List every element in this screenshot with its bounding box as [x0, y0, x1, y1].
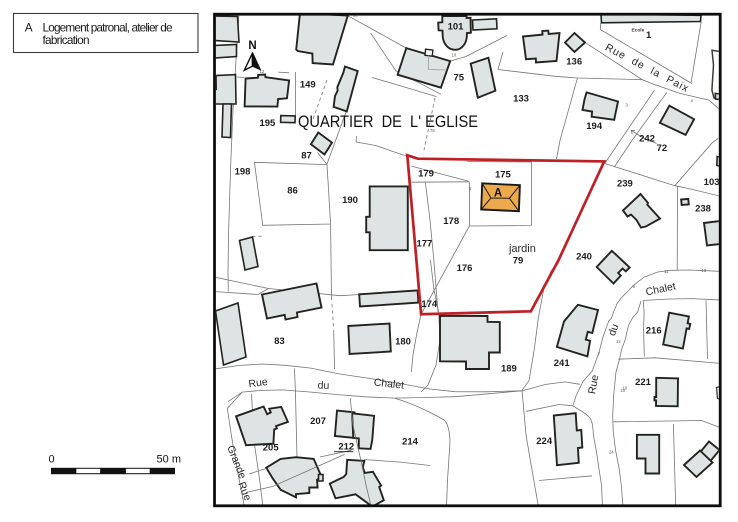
- svg-text:136: 136: [566, 57, 582, 68]
- svg-text:190: 190: [342, 195, 358, 206]
- svg-text:189: 189: [501, 364, 517, 375]
- svg-text:75: 75: [454, 73, 465, 84]
- svg-text:A: A: [25, 21, 33, 35]
- svg-text:79: 79: [513, 256, 524, 267]
- svg-text:11: 11: [664, 269, 669, 274]
- svg-text:12: 12: [616, 339, 621, 344]
- svg-text:1: 1: [646, 30, 652, 41]
- svg-text:jardin: jardin: [508, 243, 536, 255]
- svg-text:195: 195: [259, 118, 276, 129]
- svg-text:241: 241: [554, 358, 571, 369]
- svg-text:214: 214: [402, 437, 419, 448]
- svg-text:238: 238: [695, 204, 711, 215]
- svg-text:216: 216: [646, 326, 662, 337]
- svg-text:212: 212: [338, 442, 354, 453]
- svg-text:A: A: [494, 188, 502, 200]
- svg-text:0: 0: [49, 454, 55, 466]
- svg-text:10: 10: [452, 53, 457, 58]
- svg-text:133: 133: [513, 93, 529, 104]
- svg-text:50 m: 50 m: [157, 454, 181, 466]
- svg-text:83: 83: [274, 336, 285, 347]
- svg-text:Ecole: Ecole: [631, 28, 644, 34]
- svg-text:76: 76: [430, 128, 435, 133]
- svg-text:177: 177: [416, 238, 432, 249]
- svg-text:174: 174: [421, 299, 438, 310]
- svg-text:du: du: [317, 380, 329, 392]
- svg-text:10: 10: [621, 388, 626, 393]
- svg-text:101: 101: [448, 22, 465, 33]
- svg-text:242: 242: [639, 134, 655, 145]
- svg-text:176: 176: [457, 263, 473, 274]
- svg-text:fabrication: fabrication: [43, 33, 90, 47]
- svg-text:QUARTIER DE L' EGLISE: QUARTIER DE L' EGLISE: [298, 113, 478, 131]
- svg-text:24: 24: [609, 450, 614, 455]
- svg-text:149: 149: [300, 80, 316, 91]
- svg-text:72: 72: [657, 143, 668, 154]
- svg-text:13: 13: [702, 268, 707, 273]
- svg-text:175: 175: [495, 170, 512, 181]
- svg-text:239: 239: [617, 178, 633, 189]
- svg-text:221: 221: [635, 377, 652, 388]
- svg-text:194: 194: [586, 121, 603, 132]
- svg-text:87: 87: [301, 151, 312, 162]
- svg-text:198: 198: [235, 167, 251, 178]
- svg-text:180: 180: [395, 337, 411, 348]
- svg-text:205: 205: [263, 443, 280, 454]
- svg-text:N: N: [248, 40, 256, 52]
- svg-text:207: 207: [310, 416, 326, 427]
- svg-text:240: 240: [576, 252, 592, 263]
- svg-text:86: 86: [287, 186, 298, 197]
- svg-text:178: 178: [443, 216, 459, 227]
- svg-text:224: 224: [536, 436, 553, 447]
- svg-text:103: 103: [704, 177, 720, 188]
- svg-text:179: 179: [418, 169, 434, 180]
